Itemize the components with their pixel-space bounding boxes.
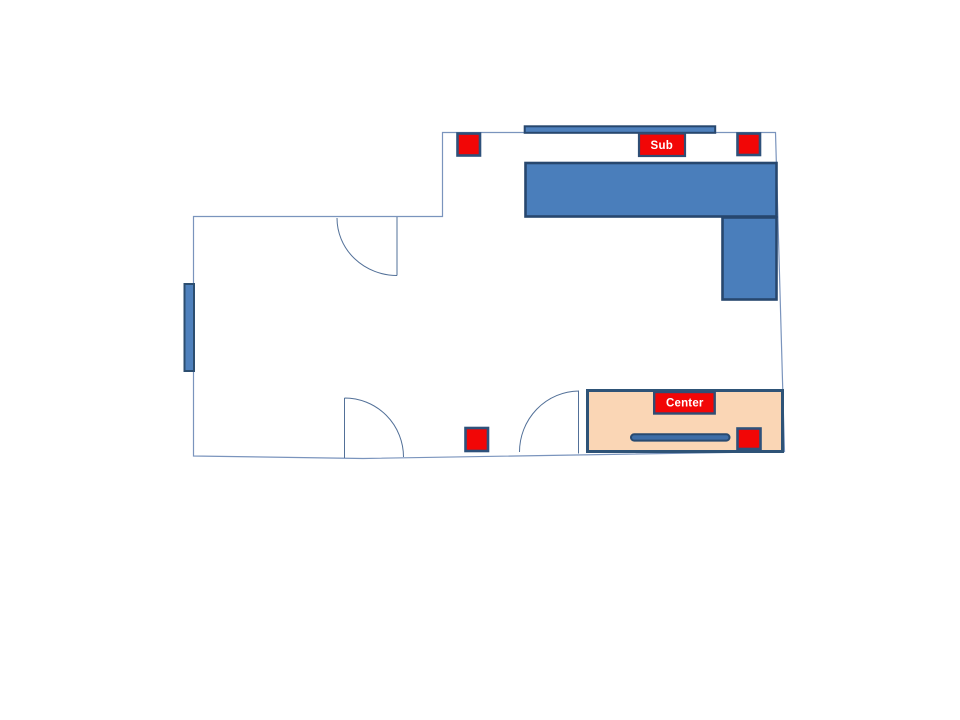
svg-text:Center: Center: [666, 397, 704, 409]
svg-text:Sub: Sub: [650, 140, 673, 152]
